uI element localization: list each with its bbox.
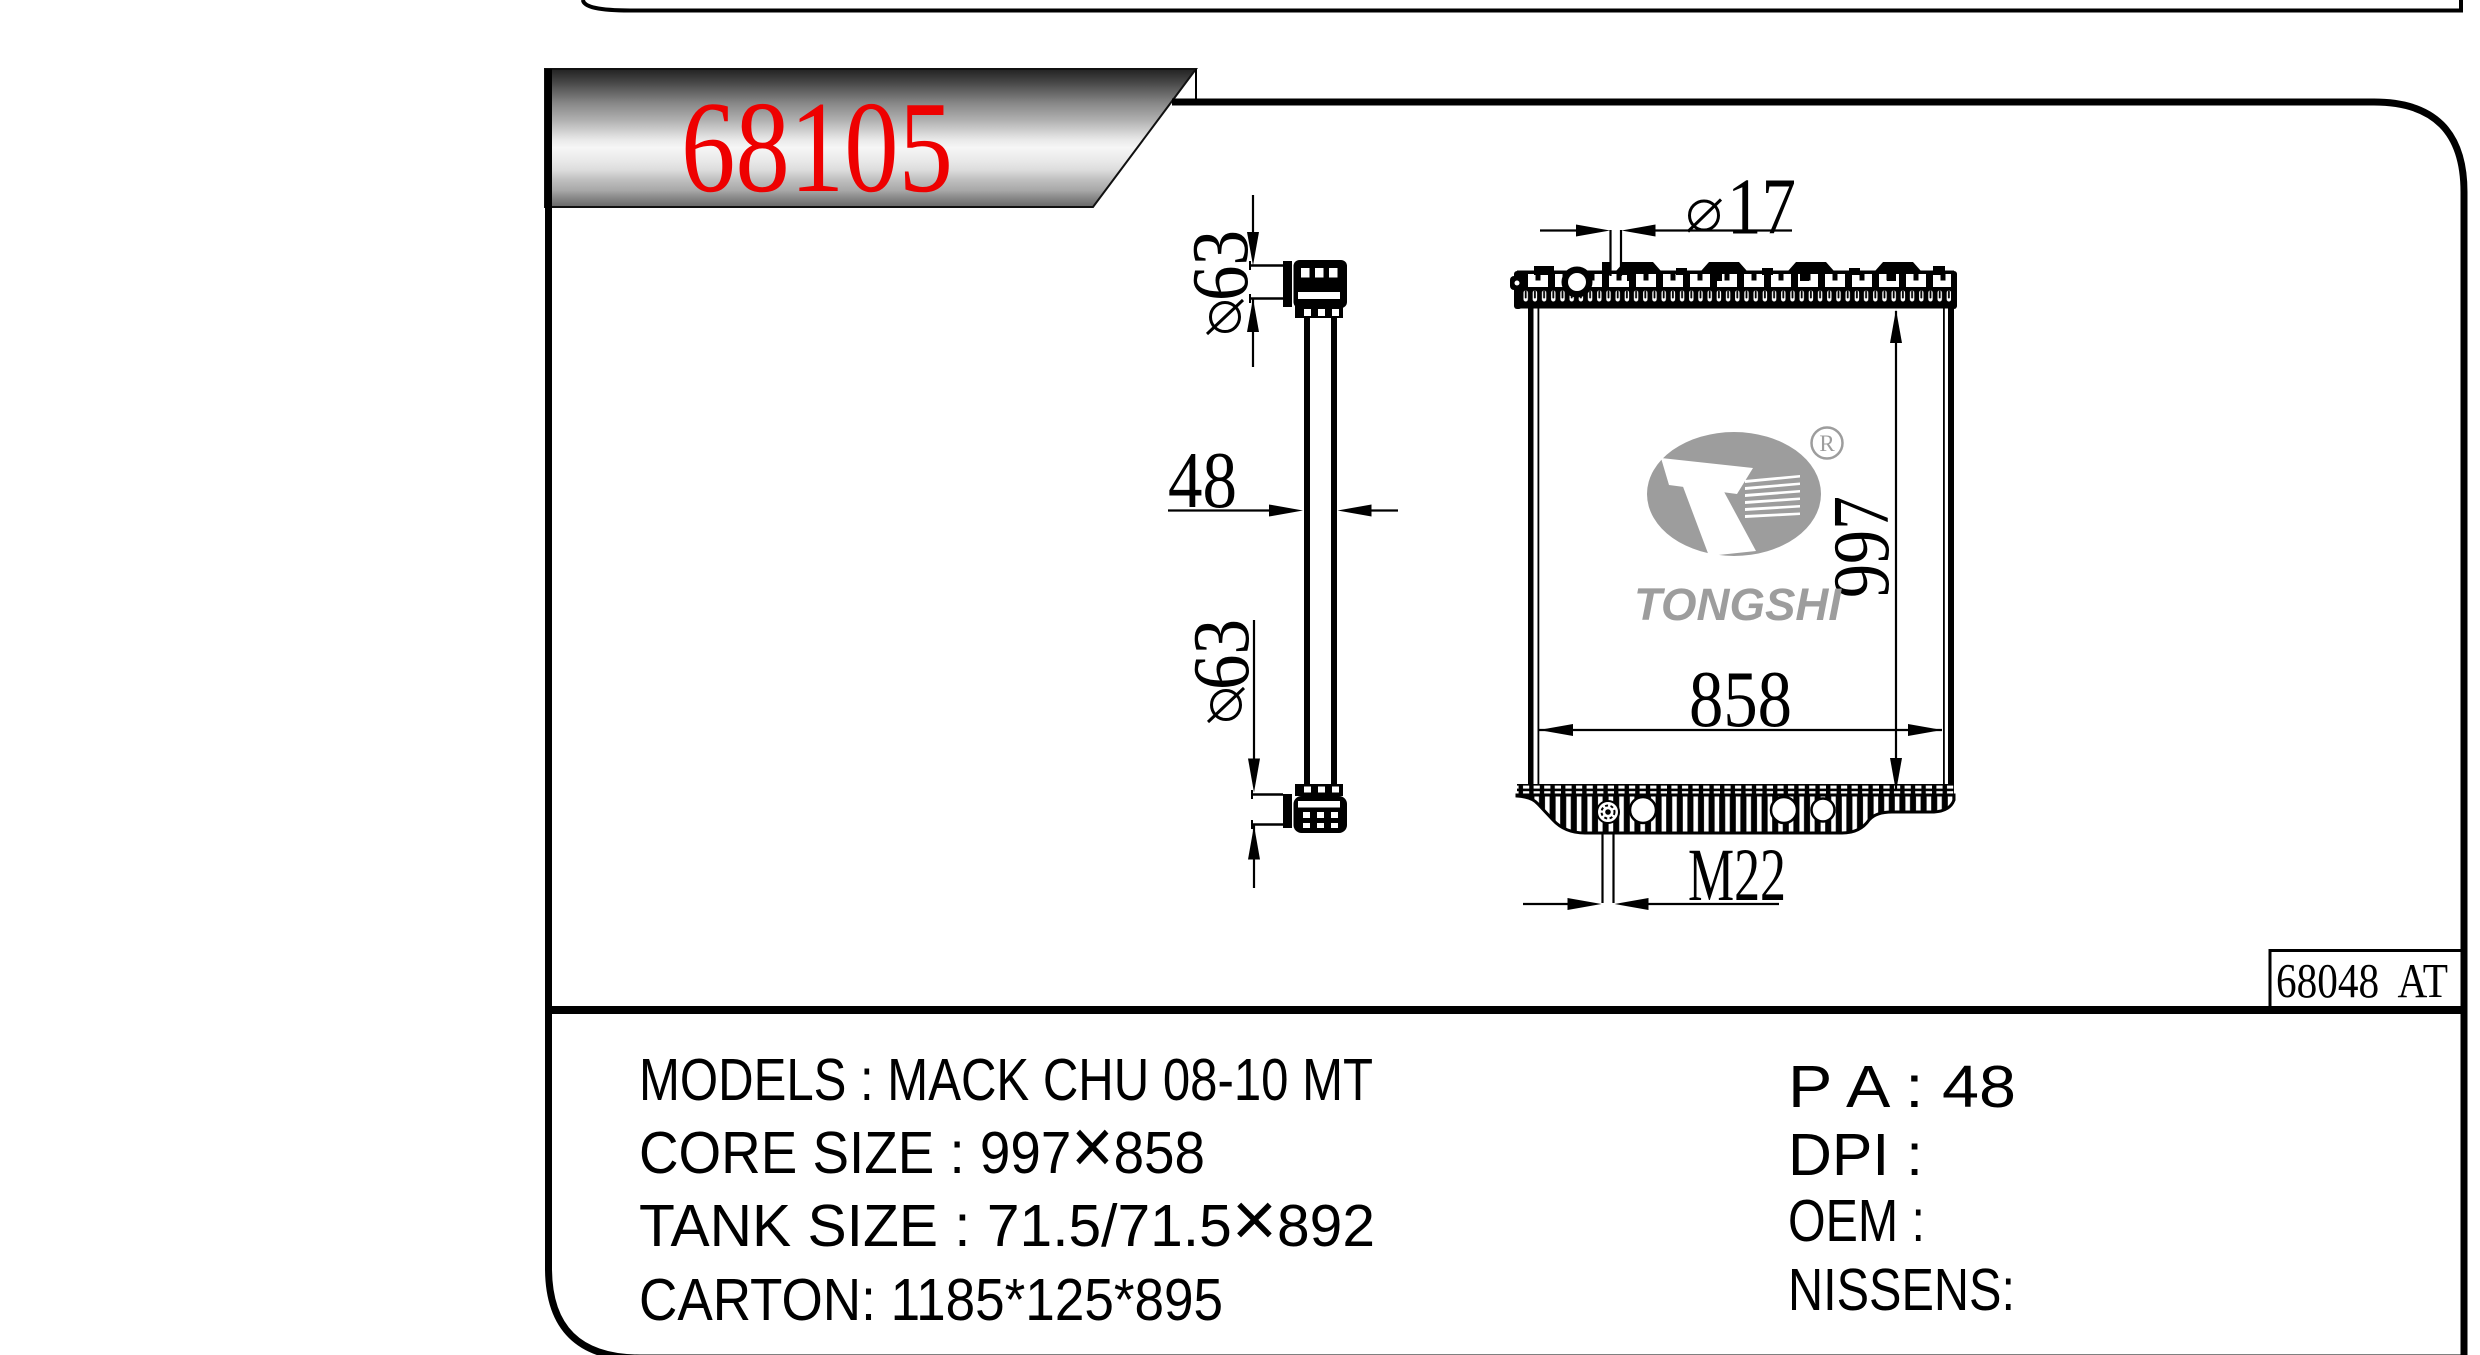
svg-text:CARTON: 1185*125*895: CARTON: 1185*125*895	[639, 1267, 1223, 1333]
svg-text:TONGSHI: TONGSHI	[1634, 579, 1843, 630]
svg-text:48: 48	[1168, 437, 1237, 525]
svg-text:P A : 48: P A : 48	[1788, 1054, 2016, 1120]
svg-text:17: 17	[1727, 164, 1796, 252]
svg-text:MODELS : MACK CHU 08-10 MT: MODELS : MACK CHU 08-10 MT	[639, 1047, 1373, 1113]
svg-text:68105: 68105	[681, 75, 953, 220]
svg-text:DPI :: DPI :	[1788, 1122, 1923, 1188]
svg-text:NISSENS:: NISSENS:	[1788, 1257, 2015, 1323]
svg-text:63: 63	[1178, 619, 1266, 690]
svg-text:CORE SIZE : 997×858: CORE SIZE : 997×858	[639, 1102, 1205, 1190]
svg-text:TANK SIZE : 71.5/71.5×892: TANK SIZE : 71.5/71.5×892	[639, 1175, 1375, 1263]
svg-text:OEM :: OEM :	[1788, 1188, 1925, 1254]
svg-text:63: 63	[1177, 230, 1265, 301]
svg-text:R: R	[1819, 431, 1835, 456]
svg-text:68048 AT: 68048 AT	[2276, 953, 2448, 1008]
